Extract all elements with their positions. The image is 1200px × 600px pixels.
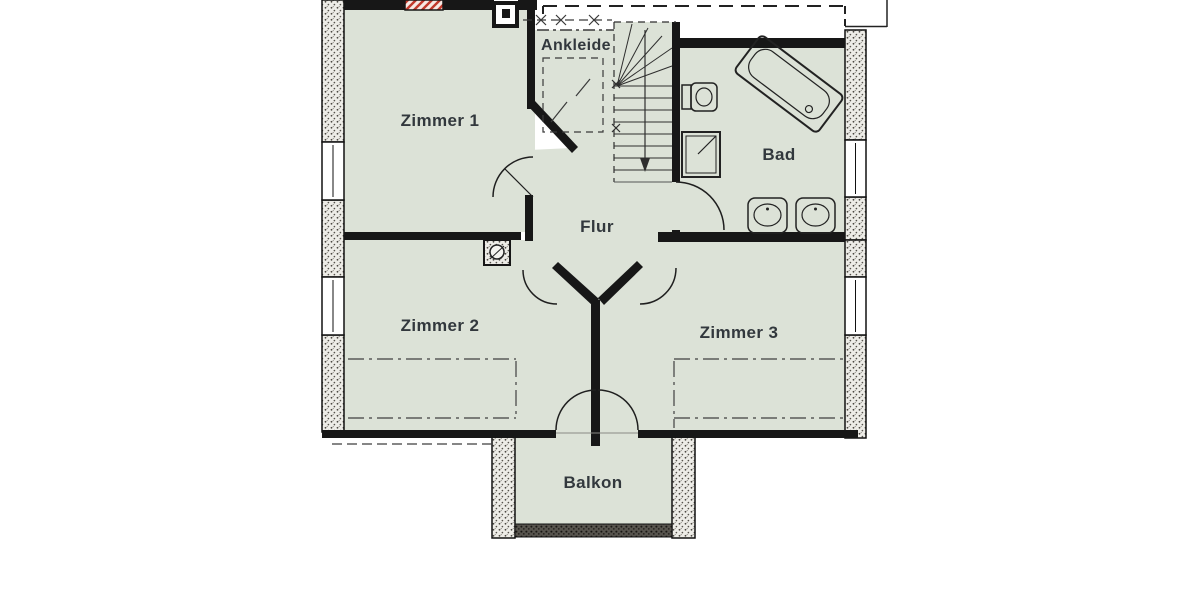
floor-plan-drawing — [0, 0, 1200, 600]
balkon-railing — [515, 524, 672, 537]
wall-left-middle — [322, 200, 344, 277]
wall-z2-bottom — [322, 430, 515, 438]
wall-balkon-jamb-right — [638, 430, 672, 438]
wall-right-z3-upper — [845, 240, 866, 277]
wall-z1-top-red-section — [405, 0, 443, 10]
room-floors — [344, 8, 845, 528]
room-label-zimmer2: Zimmer 2 — [401, 316, 480, 336]
room-label-ankleide: Ankleide — [541, 37, 611, 55]
wall-flur-left — [525, 195, 533, 241]
room-label-zimmer3: Zimmer 3 — [700, 323, 779, 343]
wall-right-z3-lower — [845, 335, 866, 438]
wall-z1-top-a — [344, 0, 405, 10]
room-label-bad: Bad — [762, 145, 795, 165]
roof-outline — [543, 0, 887, 27]
room-label-flur: Flur — [580, 217, 614, 237]
room-label-zimmer1: Zimmer 1 — [401, 111, 480, 131]
washbasin-tap — [766, 208, 769, 211]
room-label-balkon: Balkon — [563, 473, 622, 493]
flue-box-inner — [502, 9, 510, 18]
balkon-pillar-right — [672, 432, 695, 538]
wall-right-bad-lower — [845, 197, 866, 240]
balkon-pillar-left — [492, 432, 515, 538]
wall-z1-top-b — [443, 0, 494, 10]
wall-z1-right — [527, 0, 535, 109]
wall-right-bad-upper — [845, 30, 866, 140]
washbasin-tap — [814, 208, 817, 211]
floor-plan-canvas: Zimmer 1 Ankleide Bad Flur Zimmer 2 Zimm… — [0, 0, 1200, 600]
wall-z2-z3-stem — [591, 300, 600, 446]
wall-left-upper — [322, 0, 344, 142]
wall-z3-bottom — [672, 430, 858, 438]
bad-floor — [676, 38, 845, 240]
wall-left-lower — [322, 335, 344, 432]
wall-balkon-jamb-left — [515, 430, 556, 438]
wall-z1-z2 — [344, 232, 521, 240]
